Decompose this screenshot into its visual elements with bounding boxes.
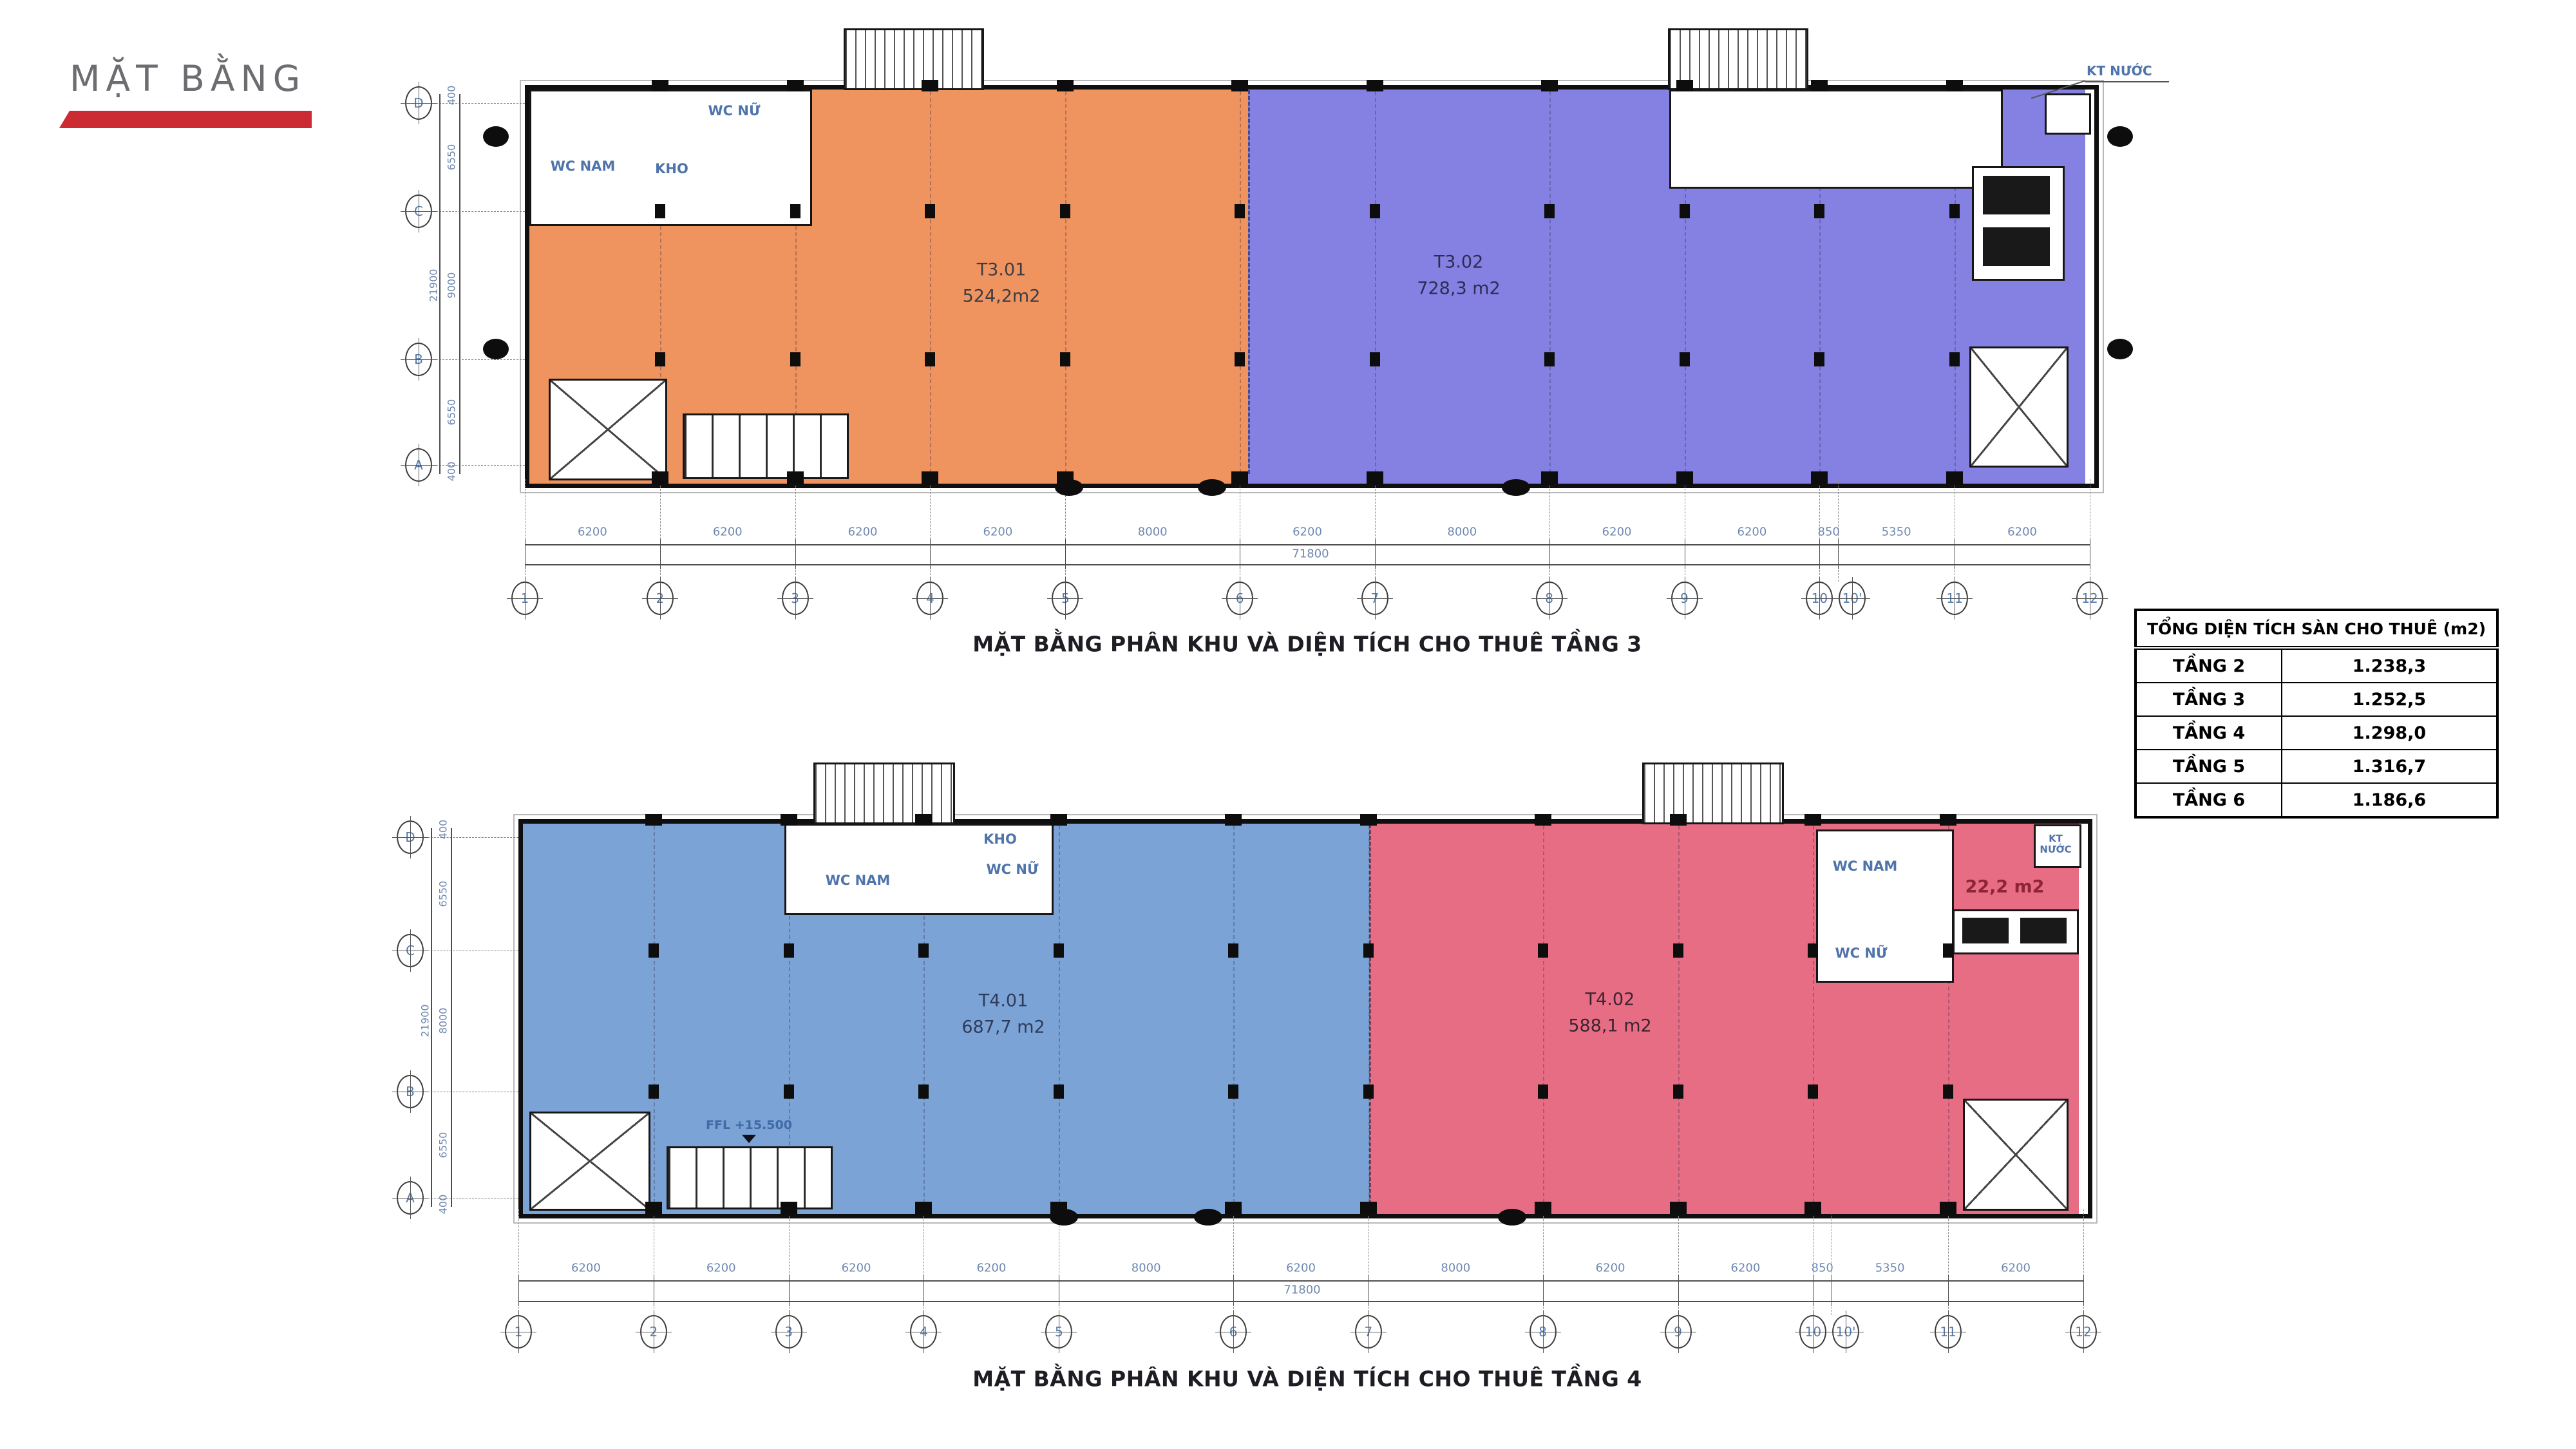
column-mark — [918, 943, 929, 958]
row-connector-line — [433, 359, 525, 360]
column-mark — [1060, 352, 1070, 366]
column-mark — [1235, 352, 1245, 366]
grid-bubble-12: 12 — [2070, 1315, 2097, 1349]
table-row: TẦNG 41.298,0 — [2136, 716, 2497, 750]
room-label-wc-nam: WC NAM — [551, 158, 616, 174]
column-mark — [1680, 352, 1690, 366]
column-mark — [1670, 814, 1687, 826]
column-mark — [645, 1202, 662, 1215]
column-mark — [1054, 943, 1064, 958]
grid-bubble-10': 10' — [1839, 582, 1866, 615]
column-mark — [645, 814, 662, 826]
grid-bubble-5: 5 — [1045, 1315, 1072, 1349]
grid-bubble-7: 7 — [1355, 1315, 1382, 1349]
vertical-dimension-total-label: 21900 — [428, 269, 440, 302]
grid-bubble-2: 2 — [640, 1315, 667, 1349]
dimension-tick — [2090, 539, 2090, 569]
row-connector-line — [424, 951, 518, 951]
zone-code: T4.02 — [1568, 987, 1651, 1014]
column-mark — [652, 471, 668, 484]
dimension-tick — [1832, 1275, 1832, 1306]
table-row: TẦNG 51.316,7 — [2136, 750, 2497, 783]
room-label-kt-n-c: KT NƯỚC — [2036, 833, 2075, 856]
kt-nuoc-room-t3 — [2045, 93, 2091, 135]
dimension-tick — [1233, 1275, 1234, 1306]
column-mark — [1808, 1084, 1818, 1099]
column-mark — [781, 814, 797, 826]
zone-area: 588,1 m2 — [1568, 1013, 1651, 1039]
column-mark — [1814, 352, 1824, 366]
dimension-tick — [1065, 539, 1066, 569]
dimension-tick — [789, 1275, 790, 1306]
grid-axis-line — [1813, 826, 1814, 1203]
dimension-label: 850 — [1812, 1262, 1833, 1275]
dimension-label: 6200 — [2001, 1262, 2031, 1275]
table-cell: 1.316,7 — [2282, 750, 2497, 783]
table-row: TẦNG 61.186,6 — [2136, 783, 2497, 817]
column-blob — [2107, 339, 2133, 359]
grid-bubble-5: 5 — [1052, 582, 1079, 615]
dimension-label: 5350 — [1882, 526, 1911, 539]
dimension-tick — [1955, 539, 1955, 569]
dimension-label: 6200 — [706, 1262, 736, 1275]
elevator-block-t4 — [1953, 909, 2079, 954]
column-mark — [1676, 471, 1693, 484]
column-mark — [1057, 471, 1074, 484]
column-mark — [1363, 1084, 1374, 1099]
room-label-kho: KHO — [655, 161, 688, 176]
column-mark — [1949, 352, 1960, 366]
column-blob — [1198, 479, 1226, 496]
stair-block-bottom-left-t3 — [549, 379, 667, 480]
column-mark — [1060, 204, 1070, 218]
room-label-wc-n-: WC NỮ — [708, 103, 760, 118]
vertical-dimension-label: 400 — [437, 820, 450, 840]
grid-bubble-6: 6 — [1226, 582, 1253, 615]
dimension-label: 6200 — [1293, 526, 1322, 539]
column-mark — [655, 352, 665, 366]
grid-axis-line — [1678, 826, 1680, 1203]
column-mark — [1054, 1084, 1064, 1099]
wc-stalls-bottom-left-t4 — [667, 1146, 833, 1209]
column-mark — [1538, 943, 1548, 958]
column-mark — [1050, 1202, 1067, 1215]
wc-block-top-right-t3 — [1669, 90, 2003, 189]
dimension-label: 850 — [1818, 526, 1840, 539]
dimension-tick — [518, 1275, 519, 1306]
vertical-dimension-label: 400 — [446, 86, 458, 106]
column-mark — [1538, 1084, 1548, 1099]
column-mark — [1535, 1202, 1551, 1215]
grid-axis-line — [1549, 91, 1551, 473]
leader-line — [2085, 81, 2169, 82]
column-mark — [1367, 471, 1383, 484]
table-cell: 1.238,3 — [2282, 648, 2497, 683]
dimension-label: 8000 — [1132, 1262, 1161, 1275]
dimension-tick — [1678, 1275, 1679, 1306]
column-mark — [1231, 471, 1248, 484]
dimension-label: 6200 — [1738, 526, 1767, 539]
stair-bump-top-2-t4 — [1642, 762, 1784, 824]
vertical-dimension-label: 400 — [437, 1195, 450, 1215]
column-mark — [1370, 204, 1380, 218]
wc-stalls-bottom-left-t3 — [683, 413, 849, 479]
column-blob — [1194, 1209, 1222, 1226]
vertical-dimension-label: 6550 — [446, 144, 458, 171]
dimension-line — [525, 544, 2090, 545]
stair-bump-top-1-t3 — [844, 28, 984, 90]
column-mark — [1804, 814, 1821, 826]
column-mark — [1811, 471, 1828, 484]
column-mark — [1680, 204, 1690, 218]
column-mark — [1225, 1202, 1242, 1215]
zone-code: T4.01 — [961, 989, 1045, 1015]
column-mark — [784, 1084, 794, 1099]
row-connector-line — [433, 211, 525, 212]
table-cell: 1.298,0 — [2282, 716, 2497, 750]
elevator-block-right-t3 — [1972, 166, 2065, 281]
elevator-car-icon — [1983, 227, 2050, 266]
column-mark — [1541, 471, 1558, 484]
vertical-dimension-line — [459, 94, 460, 474]
column-mark — [1367, 80, 1383, 91]
grid-bubble-10: 10 — [1799, 1315, 1826, 1349]
vertical-dimension-label: 8000 — [437, 1008, 450, 1034]
column-mark — [1057, 80, 1074, 91]
column-mark — [1946, 80, 1963, 91]
dimension-label: 6200 — [977, 1262, 1007, 1275]
grid-bubble-B: B — [405, 343, 432, 376]
grid-axis-line — [1240, 91, 1241, 473]
column-mark — [1814, 204, 1824, 218]
dimension-tick — [1368, 1275, 1369, 1306]
column-mark — [649, 943, 659, 958]
dimension-tick — [1059, 1275, 1059, 1306]
row-connector-line — [424, 1092, 518, 1092]
grid-bubble-C: C — [405, 194, 432, 228]
column-mark — [652, 80, 668, 91]
dimension-label: 6200 — [1286, 1262, 1316, 1275]
grid-axis-line — [930, 91, 931, 473]
zone-split-line — [1369, 824, 1371, 1204]
room-label-wc-n-: WC NỮ — [986, 862, 1038, 877]
dimension-tick — [1948, 1275, 1949, 1306]
dimension-label: 6200 — [848, 526, 878, 539]
level-triangle-icon — [742, 1135, 756, 1143]
zone-label-t4-01: T4.01 687,7 m2 — [961, 989, 1045, 1041]
grid-bubble-10': 10' — [1832, 1315, 1859, 1349]
grid-axis-line — [1543, 826, 1544, 1203]
column-mark — [787, 471, 804, 484]
dimension-label: 6200 — [1596, 1262, 1625, 1275]
dimension-tick — [795, 539, 796, 569]
dimension-tick — [525, 539, 526, 569]
vertical-dimension-label: 9000 — [446, 272, 458, 299]
vertical-dimension-line — [451, 828, 452, 1207]
leasable-area-table: TỔNG DIỆN TÍCH SÀN CHO THUÊ (m2) TẦNG 21… — [2134, 609, 2499, 819]
grid-bubble-D: D — [405, 86, 432, 120]
grid-bubble-D: D — [397, 820, 424, 854]
page-title: MẶT BẰNG — [70, 58, 306, 99]
title-underline — [59, 111, 312, 128]
column-mark — [1544, 352, 1555, 366]
vertical-dimension-label: 6550 — [437, 1132, 450, 1159]
column-mark — [925, 352, 935, 366]
table-cell: 1.252,5 — [2282, 683, 2497, 716]
grid-axis-line — [1059, 826, 1060, 1203]
column-mark — [1544, 204, 1555, 218]
grid-bubble-9: 9 — [1665, 1315, 1692, 1349]
column-mark — [649, 1084, 659, 1099]
dimension-label: 6200 — [571, 1262, 601, 1275]
dimension-tick — [1543, 1275, 1544, 1306]
room-label-wc-nam: WC NAM — [1833, 858, 1898, 874]
elevator-car-icon — [2020, 918, 2067, 943]
grid-bubble-8: 8 — [1529, 1315, 1557, 1349]
zone-label-t4-02: T4.02 588,1 m2 — [1568, 987, 1651, 1039]
floor-plan-page: MẶT BẰNG T3.01 524,2m2 T3.02 728,3 m2 KT… — [0, 0, 2576, 1449]
column-blob — [483, 126, 509, 147]
dimension-tick — [930, 539, 931, 569]
column-mark — [1670, 1202, 1687, 1215]
grid-bubble-10: 10 — [1806, 582, 1833, 615]
dimension-total-label: 71800 — [1283, 1283, 1320, 1297]
grid-axis-line — [1065, 91, 1066, 473]
column-mark — [1949, 204, 1960, 218]
table-cell: 1.186,6 — [2282, 783, 2497, 817]
column-mark — [915, 814, 932, 826]
column-mark — [1946, 471, 1963, 484]
column-mark — [925, 204, 935, 218]
dimension-label: 5350 — [1875, 1262, 1905, 1275]
dimension-tick — [654, 1275, 654, 1306]
stair-block-bottom-right-t3 — [1969, 346, 2069, 468]
grid-axis-line — [654, 826, 655, 1203]
dimension-tick — [1838, 539, 1839, 569]
column-mark — [1360, 814, 1377, 826]
grid-bubble-6: 6 — [1220, 1315, 1247, 1349]
column-mark — [1943, 1084, 1953, 1099]
dimension-tick — [1549, 539, 1550, 569]
column-mark — [1370, 352, 1380, 366]
column-mark — [1363, 943, 1374, 958]
column-mark — [1228, 943, 1238, 958]
grid-bubble-1: 1 — [511, 582, 538, 615]
zone-label-t3-02: T3.02 728,3 m2 — [1417, 250, 1500, 302]
column-mark — [1808, 943, 1818, 958]
dimension-tick — [923, 1275, 924, 1306]
grid-axis-line — [1233, 826, 1235, 1203]
column-mark — [784, 943, 794, 958]
column-mark — [1804, 1202, 1821, 1215]
column-mark — [915, 1202, 932, 1215]
column-mark — [1940, 814, 1956, 826]
dimension-label: 6200 — [713, 526, 743, 539]
column-blob — [1502, 479, 1530, 496]
zone-code: T3.02 — [1417, 250, 1500, 276]
dimension-line — [518, 1280, 2083, 1282]
table-cell: TẦNG 3 — [2136, 683, 2282, 716]
dimension-tick — [660, 539, 661, 569]
grid-bubble-11: 11 — [1935, 1315, 1962, 1349]
dimension-label: 6200 — [842, 1262, 871, 1275]
dimension-label: 8000 — [1138, 526, 1168, 539]
grid-bubble-4: 4 — [910, 1315, 937, 1349]
column-mark — [1360, 1202, 1377, 1215]
zone-area: 687,7 m2 — [961, 1014, 1045, 1041]
dimension-label: 6200 — [578, 526, 607, 539]
grid-bubble-11: 11 — [1941, 582, 1968, 615]
dimension-label: 8000 — [1441, 1262, 1470, 1275]
table-cell: TẦNG 6 — [2136, 783, 2282, 817]
grid-bubble-A: A — [397, 1181, 424, 1215]
dimension-tick — [1819, 539, 1820, 569]
table-row: TẦNG 21.238,3 — [2136, 648, 2497, 683]
column-mark — [918, 1084, 929, 1099]
vertical-dimension-total-label: 21900 — [419, 1005, 431, 1037]
zone-label-t3-01: T3.01 524,2m2 — [963, 258, 1041, 310]
grid-bubble-9: 9 — [1671, 582, 1698, 615]
dimension-line — [525, 564, 2090, 565]
column-mark — [790, 352, 800, 366]
dimension-tick — [1685, 539, 1685, 569]
vertical-dimension-label: 6550 — [437, 881, 450, 907]
column-mark — [1541, 80, 1558, 91]
elevator-car-icon — [1962, 918, 2009, 943]
vertical-dimension-label: 6550 — [446, 399, 458, 426]
table-cell: TẦNG 2 — [2136, 648, 2282, 683]
dimension-tick — [1240, 539, 1240, 569]
column-mark — [1940, 1202, 1956, 1215]
caption-tang3: MẶT BẰNG PHÂN KHU VÀ DIỆN TÍCH CHO THUÊ … — [972, 632, 1642, 657]
column-mark — [1225, 814, 1242, 826]
column-blob — [483, 339, 509, 359]
column-mark — [787, 80, 804, 91]
dimension-tick — [1813, 1275, 1814, 1306]
stair-block-bottom-right-t4 — [1963, 1099, 2069, 1211]
caption-tang4: MẶT BẰNG PHÂN KHU VÀ DIỆN TÍCH CHO THUÊ … — [972, 1367, 1642, 1392]
dimension-label: 6200 — [983, 526, 1013, 539]
column-mark — [1235, 204, 1245, 218]
grid-bubble-3: 3 — [775, 1315, 802, 1349]
column-mark — [1228, 1084, 1238, 1099]
zone-split-line — [1248, 90, 1250, 474]
dimension-label: 8000 — [1447, 526, 1477, 539]
room-label-22-2-m2: 22,2 m2 — [1965, 876, 2045, 896]
dimension-total-label: 71800 — [1292, 547, 1329, 561]
column-blob — [1498, 1209, 1526, 1226]
column-mark — [922, 471, 938, 484]
room-label-wc-nam: WC NAM — [826, 873, 891, 888]
dimension-label: 6200 — [2007, 526, 2037, 539]
column-mark — [922, 80, 938, 91]
column-blob — [2107, 126, 2133, 147]
room-label-kho: KHO — [983, 831, 1017, 847]
vertical-dimension-label: 400 — [446, 462, 458, 482]
column-mark — [1943, 943, 1953, 958]
zone-area: 728,3 m2 — [1417, 276, 1500, 302]
column-mark — [1050, 814, 1067, 826]
grid-bubble-7: 7 — [1361, 582, 1388, 615]
column-mark — [781, 1202, 797, 1215]
table-title: TỔNG DIỆN TÍCH SÀN CHO THUÊ (m2) — [2136, 610, 2497, 648]
room-label-wc-n-: WC NỮ — [1835, 945, 1887, 961]
grid-bubble-2: 2 — [647, 582, 674, 615]
dimension-label: 6200 — [1602, 526, 1632, 539]
dimension-tick — [1375, 539, 1376, 569]
grid-axis-line — [1375, 91, 1376, 473]
ffl-level-label: FFL +15.500 — [706, 1118, 792, 1132]
dimension-label: 6200 — [1731, 1262, 1761, 1275]
zone-code: T3.01 — [963, 258, 1041, 284]
grid-bubble-3: 3 — [782, 582, 809, 615]
column-mark — [1811, 80, 1828, 91]
grid-bubble-1: 1 — [505, 1315, 532, 1349]
grid-bubble-B: B — [397, 1075, 424, 1108]
grid-bubble-8: 8 — [1536, 582, 1563, 615]
kt-nuoc-annotation: KT NƯỚC — [2087, 63, 2152, 79]
column-mark — [1673, 1084, 1683, 1099]
column-mark — [655, 204, 665, 218]
stair-bump-top-1-t4 — [813, 762, 955, 824]
grid-bubble-A: A — [405, 448, 432, 482]
elevator-car-icon — [1983, 176, 2050, 214]
column-mark — [1676, 80, 1693, 91]
dimension-tick — [2083, 1275, 2084, 1306]
column-mark — [1535, 814, 1551, 826]
grid-bubble-12: 12 — [2076, 582, 2103, 615]
dimension-line — [518, 1301, 2083, 1302]
grid-bubble-C: C — [397, 934, 424, 967]
column-mark — [790, 204, 800, 218]
zone-area: 524,2m2 — [963, 283, 1041, 310]
grid-bubble-4: 4 — [916, 582, 943, 615]
column-mark — [1673, 943, 1683, 958]
stair-block-bottom-left-t4 — [529, 1112, 650, 1211]
table-cell: TẦNG 4 — [2136, 716, 2282, 750]
table-row: TẦNG 31.252,5 — [2136, 683, 2497, 716]
column-mark — [1231, 80, 1248, 91]
table-cell: TẦNG 5 — [2136, 750, 2282, 783]
